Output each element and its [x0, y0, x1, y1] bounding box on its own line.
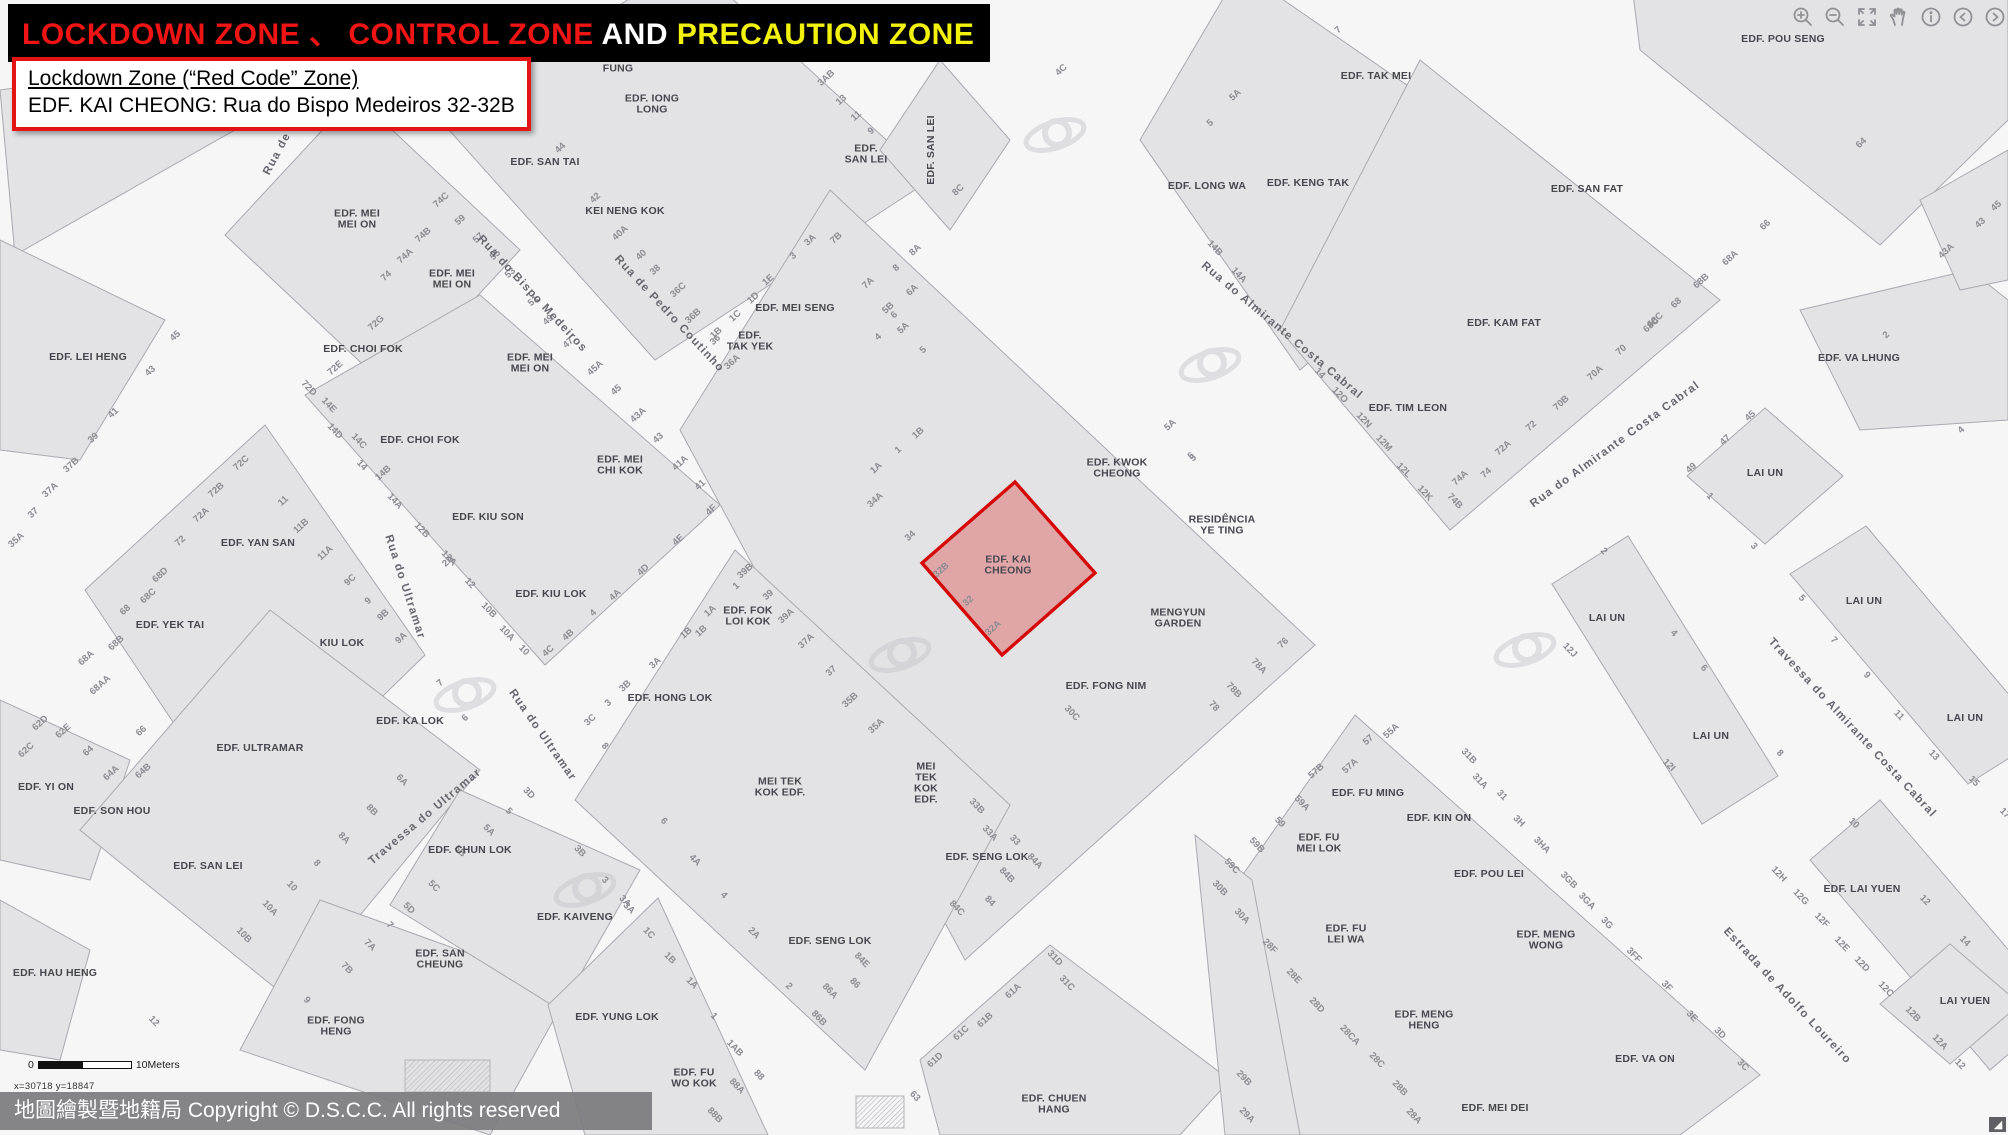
lot-number: 66 [1758, 218, 1773, 233]
building-label: EDF. VA LHUNG [1818, 352, 1900, 364]
title-banner: LOCKDOWN ZONE 、 CONTROL ZONE AND PRECAUT… [8, 4, 990, 62]
street-label: Estrada de Adolfo Loureiro [1721, 925, 1854, 1066]
dscc-watermark [432, 673, 497, 716]
building-label: EDF. ULTRAMAR [217, 742, 304, 754]
lot-number: 12D [1852, 954, 1872, 974]
lot-number: 45A [585, 358, 605, 378]
zoom-in-button[interactable] [1790, 5, 1816, 31]
building-label: LAI UN [1589, 612, 1625, 624]
identify-button[interactable] [1918, 5, 1944, 31]
city-block [920, 945, 1230, 1135]
lot-number: 17 [1997, 806, 2008, 821]
building-label: EDF. KWOKCHEONG [1087, 457, 1148, 480]
lot-number: 3D [521, 785, 537, 801]
building-label: EDF. MEIMEI ON [429, 268, 475, 291]
lot-number: 3H [1511, 813, 1527, 829]
building-label: LAI UN [1693, 730, 1729, 742]
building-label: EDF. FOKLOI KOK [723, 605, 773, 628]
lot-number: 7 [1333, 24, 1344, 36]
building-label: EDF. KIU SON [452, 511, 524, 523]
lot-number: 3HA [1531, 835, 1552, 856]
lot-number: 3 [1748, 541, 1760, 552]
building-label: EDF. KAIVENG [537, 911, 613, 923]
city-block [0, 240, 165, 460]
building-label: EDF. FONG NIM [1066, 680, 1147, 692]
lot-number: 12E [1832, 934, 1852, 954]
previous-extent-button[interactable] [1950, 5, 1976, 31]
zoom-out-button[interactable] [1822, 5, 1848, 31]
lot-number: 31A [1470, 771, 1490, 791]
building-label: EDF. SAN FAT [1551, 183, 1624, 195]
city-block [0, 900, 90, 1060]
copyright-strip: 地圖繪製暨地籍局 Copyright © D.S.C.C. All rights… [0, 1092, 652, 1130]
lot-number: 8 [1774, 748, 1786, 759]
lockdown-zone-address: EDF. KAI CHEONG: Rua do Bispo Medeiros 3… [28, 92, 515, 119]
zoom-out-icon [1823, 5, 1847, 29]
building-label: LAI UN [1747, 467, 1783, 479]
fit-extent-button[interactable] [1854, 5, 1880, 31]
lot-number: 37A [40, 480, 60, 500]
building-label: EDF. LONG WA [1168, 180, 1246, 192]
building-label: EDF. TIM LEON [1369, 402, 1447, 414]
building-label: RESIDÊNCIAYE TING [1189, 513, 1256, 537]
building-label: EDF. SAN LEI [925, 115, 937, 185]
building-label: EDF. YI ON [18, 781, 74, 793]
lot-number: 11 [1891, 708, 1906, 723]
building-label: KEI NENG KOK [585, 205, 665, 217]
next-extent-button[interactable] [1982, 5, 2008, 31]
building-label: EDF. KIN ON [1407, 812, 1472, 824]
lot-number: 12 [146, 1014, 161, 1029]
lot-number: 12J [1560, 641, 1579, 660]
street-label: Rua do Ultramar [506, 687, 578, 783]
lot-number: 3AB [816, 68, 838, 89]
building-label: EDF. MEI SENG [755, 302, 835, 314]
hatched-area [405, 1060, 490, 1092]
building-label: LAI UN [1846, 595, 1882, 607]
hand-icon [1887, 5, 1911, 29]
building-label: EDF. FU MING [1332, 787, 1404, 799]
building-label: EDF. SAN TAI [510, 156, 579, 168]
lot-number: 66 [134, 724, 149, 739]
lot-number: 3GB [1558, 869, 1580, 891]
scale-zero-label: 0 [28, 1059, 34, 1071]
lot-number: 12F [1812, 911, 1831, 931]
map-viewport[interactable]: 3AB131198C4C444240A403836C36B3636A8A86A6… [0, 0, 2008, 1135]
building-label: KIU LOK [320, 637, 365, 649]
city-block [1552, 536, 1778, 824]
lot-number: 37 [26, 506, 41, 521]
zoom-in-icon [1791, 5, 1815, 29]
cursor-coordinates: x=30718 y=18847 [14, 1081, 95, 1092]
building-label: EDF. CHOI FOK [380, 434, 460, 446]
lot-number: 12H [1769, 864, 1789, 884]
dscc-watermark [1177, 343, 1242, 386]
building-label: EDF. CHUN LOK [428, 844, 512, 856]
lot-number: 43 [651, 431, 666, 446]
lot-number: 6 [460, 712, 471, 724]
lot-number: 5A [1162, 417, 1178, 433]
building-label: EDF. MEIMEI ON [334, 208, 380, 231]
lot-number: 31 [1494, 788, 1510, 804]
banner-segment: PRECAUTION ZONE [677, 18, 975, 51]
building-label: EDF. YUNG LOK [575, 1011, 659, 1023]
building-label: EDF. HAU HENG [13, 967, 97, 979]
lockdown-info-box: Lockdown Zone (“Red Code” Zone) EDF. KAI… [12, 57, 531, 131]
lot-number: 5 [1796, 593, 1808, 605]
map-toolbar [1790, 5, 2008, 31]
building-label: MEI TEKKOK EDF. [755, 776, 806, 799]
lot-number: 31B [1459, 746, 1479, 766]
banner-segment: CONTROL ZONE [348, 18, 593, 51]
lot-number: 3 [603, 697, 614, 709]
building-label: EDF. FULEI WA [1325, 923, 1366, 946]
lot-number: 7 [435, 677, 446, 689]
building-label: EDF. HONG LOK [628, 692, 713, 704]
lot-number: 3G [1598, 915, 1615, 932]
building-label: EDF. KAM FAT [1467, 317, 1541, 329]
building-label: EDF. SANCHEUNG [415, 948, 464, 971]
dscc-watermark [1022, 113, 1087, 156]
lot-number: 68A [1720, 248, 1740, 268]
scale-distance-label: 10Meters [136, 1059, 180, 1071]
building-label: EDF. LEI HENG [49, 351, 127, 363]
building-label: EDF. SENG LOK [945, 851, 1028, 863]
building-label: EDF. KENG TAK [1267, 177, 1350, 189]
building-label: EDF. YAN SAN [221, 537, 295, 549]
banner-segment: AND [594, 18, 677, 51]
lot-number: 3C [582, 712, 598, 728]
scale-bar-graphic [38, 1061, 132, 1069]
building-label: EDF. MEICHI KOK [597, 454, 643, 477]
lot-number: 4C [1053, 62, 1069, 78]
lot-number: 8A [907, 242, 923, 258]
building-label: EDF. FUMEI LOK [1296, 832, 1341, 855]
building-label: EDF. SON HOU [73, 805, 150, 817]
banner-segment: 、 [300, 18, 348, 51]
expand-arrows-icon [1855, 5, 1879, 29]
building-label: MEITEKKOKEDF. [914, 761, 938, 806]
building-label: EDF. MEIMEI ON [507, 352, 553, 375]
building-label: EDF. POU SENG [1741, 33, 1825, 45]
arrow-circle-left-icon [1951, 5, 1975, 29]
building-label: EDF. KA LOK [376, 715, 444, 727]
city-block [1800, 270, 2008, 430]
scale-bar: 0 10Meters [28, 1059, 180, 1071]
lot-number: 63 [907, 1089, 922, 1104]
building-label: EDF. VA ON [1615, 1053, 1675, 1065]
lot-number: 7 [1828, 635, 1840, 646]
lot-number: 35A [6, 530, 26, 550]
lot-number: 4 [1956, 424, 1968, 436]
pan-button[interactable] [1886, 5, 1912, 31]
lockdown-zone-heading: Lockdown Zone (“Red Code” Zone) [28, 65, 515, 92]
lot-number: 43 [143, 364, 158, 379]
lot-number: 3GA [1576, 890, 1598, 912]
lockdown-building-label: EDF. KAICHEONG [984, 554, 1031, 577]
building-label: EDF. TAK MEI [1341, 70, 1411, 82]
building-label: EDF. KIU LOK [515, 588, 586, 600]
building-label: EDF. POU LEI [1454, 868, 1524, 880]
cadastral-map[interactable]: 3AB131198C4C444240A403836C36B3636A8A86A6… [0, 0, 2008, 1135]
building-label: EDF. SAN LEI [173, 860, 243, 872]
building-label: EDF. YEK TAI [136, 619, 205, 631]
city-block [1790, 526, 2008, 784]
dscc-watermark [1492, 628, 1557, 671]
lot-number: 55A [1381, 721, 1401, 741]
lot-number: 88 [751, 1068, 766, 1083]
building-label: LAI YUEN [1940, 995, 1990, 1007]
lot-number: 9 [1861, 670, 1873, 681]
lot-number: 68AA [88, 673, 114, 698]
banner-segment: LOCKDOWN ZONE [22, 18, 300, 51]
resize-corner-icon[interactable] [1989, 1117, 2006, 1132]
building-label: LAI UN [1947, 712, 1983, 724]
city-block [880, 60, 1010, 230]
building-label: EDF. SENG LOK [788, 935, 871, 947]
building-label: EDF. FUWO KOK [671, 1067, 717, 1090]
lot-number: 68A [76, 648, 96, 668]
building-label: EDF. MEI DEI [1461, 1102, 1528, 1114]
lot-number: 45 [168, 328, 184, 344]
hatched-area [856, 1096, 904, 1128]
building-label: EDF. LAI YUEN [1823, 883, 1900, 895]
lot-number: 43A [628, 405, 648, 425]
lot-number: 45 [609, 382, 625, 398]
building-label: EDF. CHOI FOK [323, 343, 403, 355]
building-label: MENGYUNGARDEN [1150, 607, 1205, 630]
arrow-circle-right-icon [1983, 5, 2007, 29]
lot-number: 12G [1791, 887, 1811, 908]
info-icon [1919, 5, 1943, 29]
